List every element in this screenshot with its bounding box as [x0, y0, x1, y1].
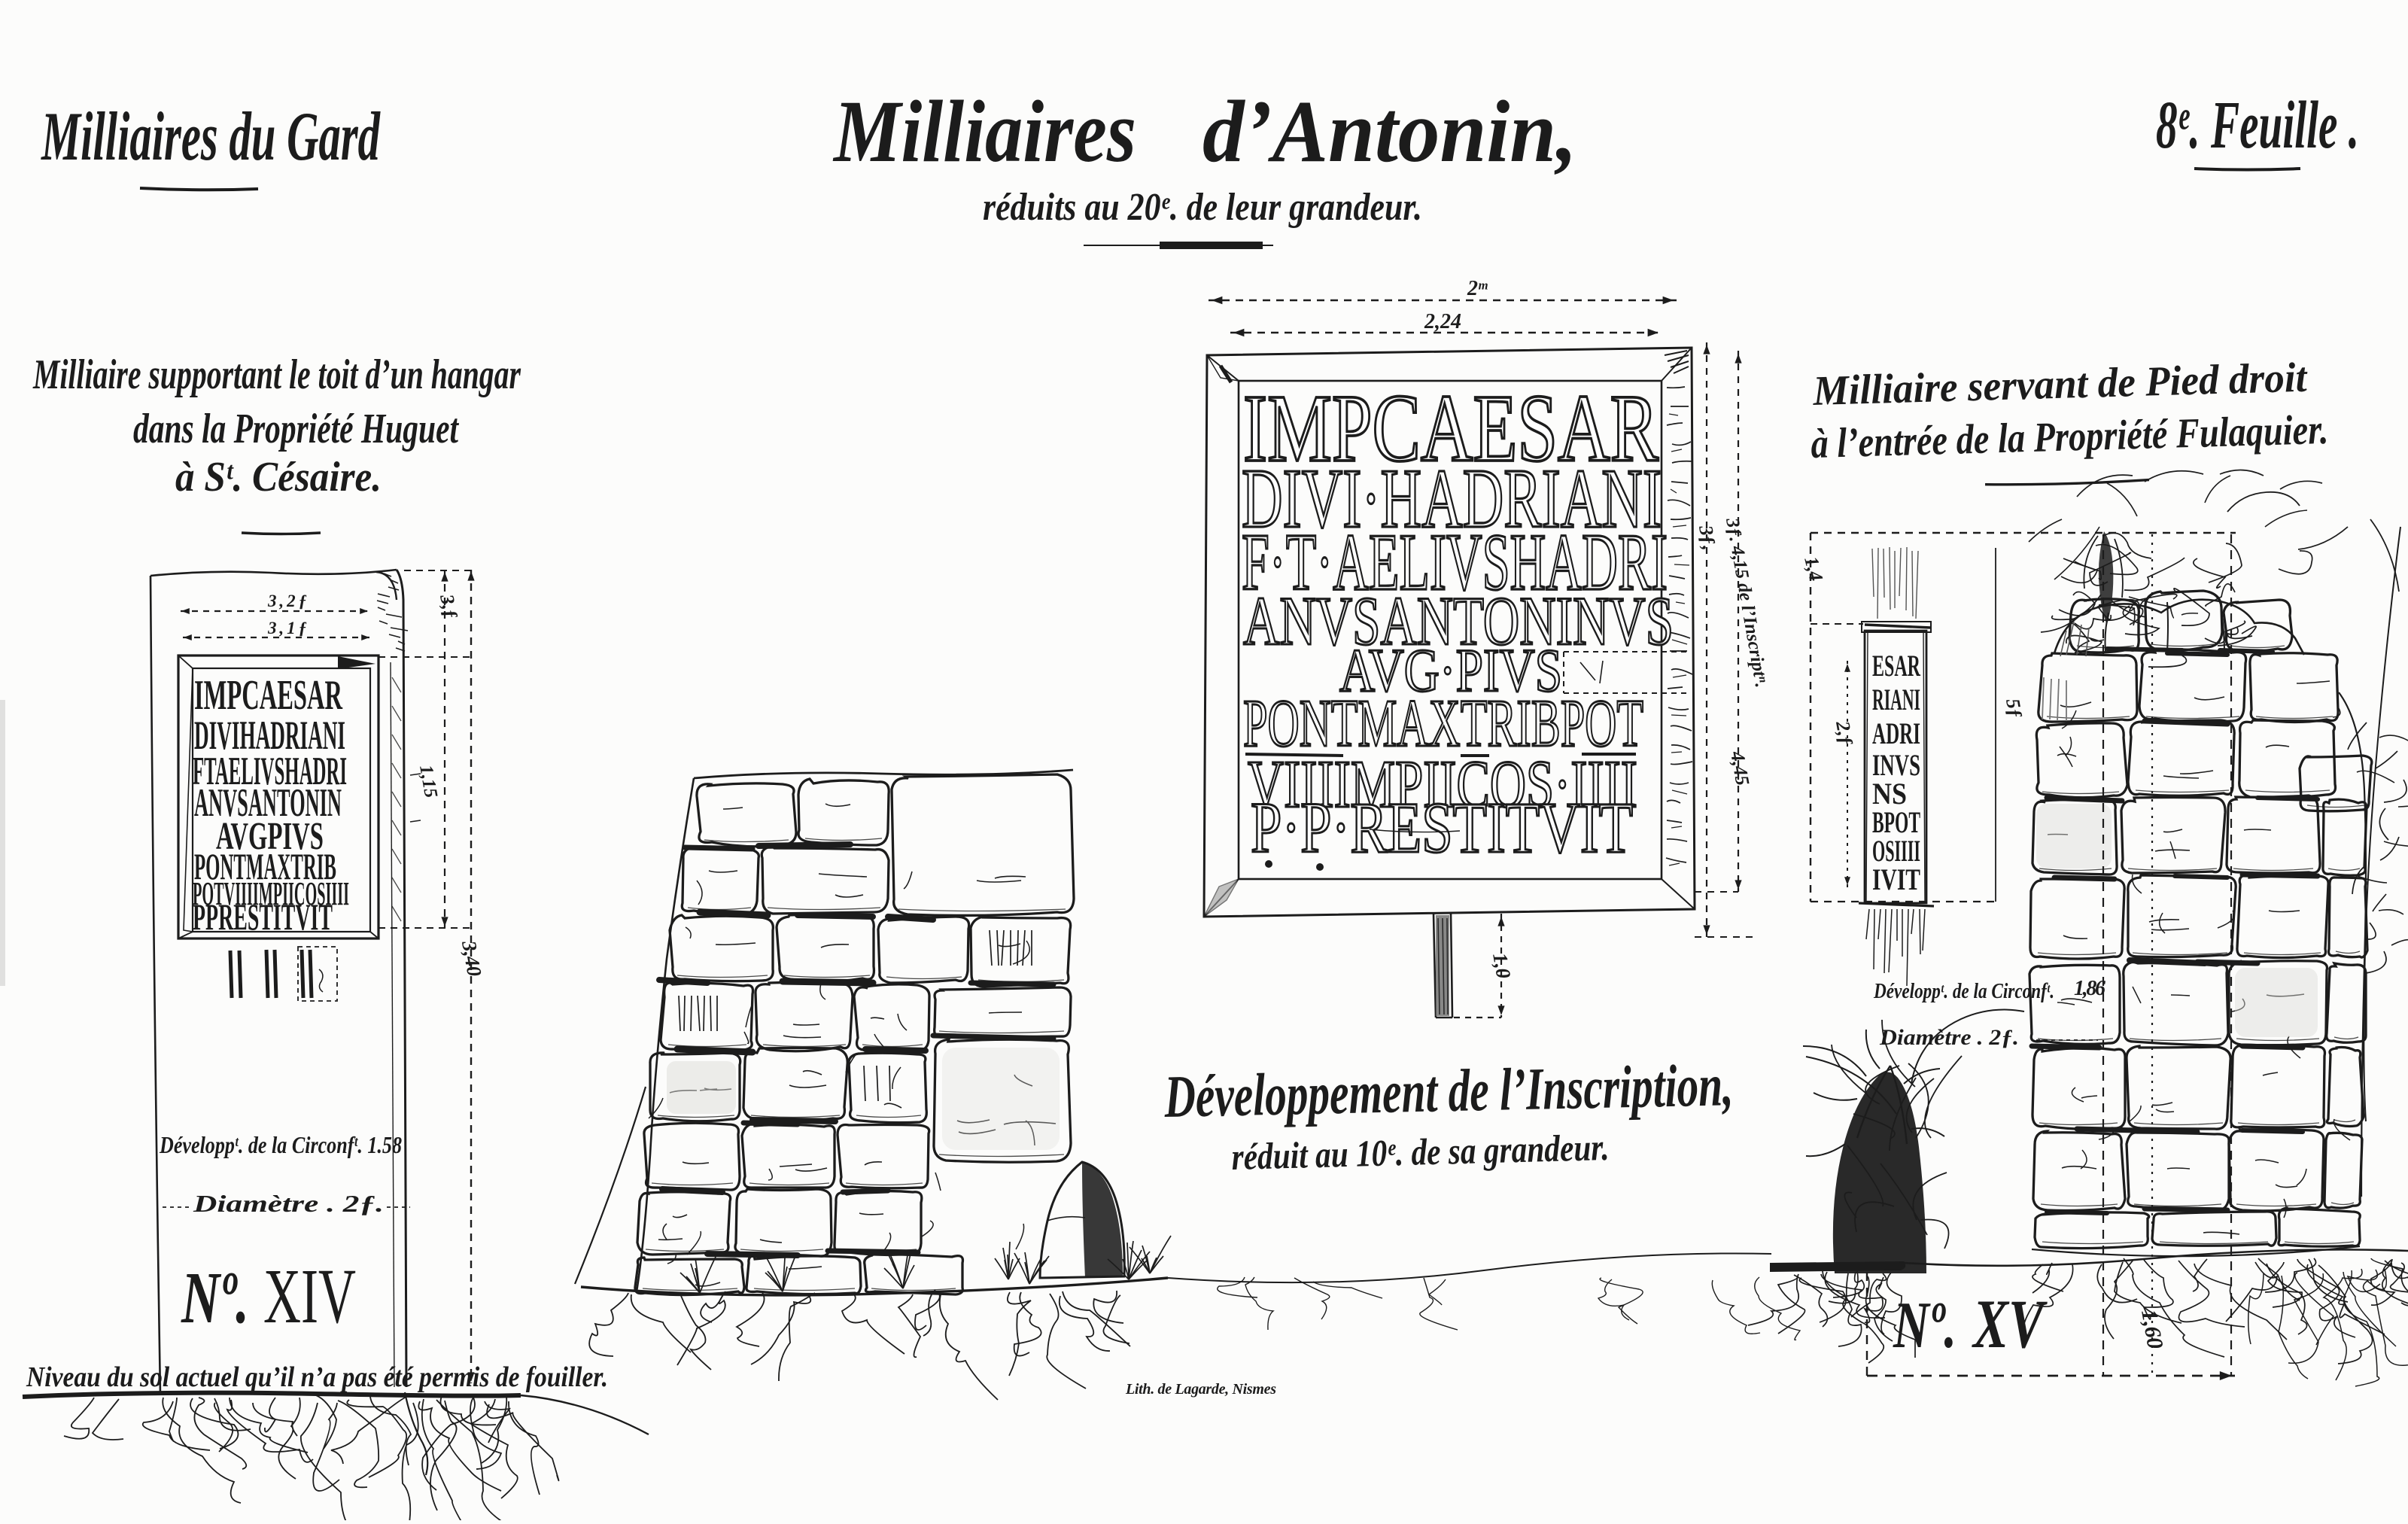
svg-text:XIV: XIV: [263, 1253, 356, 1340]
svg-text:Milliaires du Gard: Milliaires du Gard: [41, 98, 382, 175]
svg-text:Lith. de Lagarde, Nismes: Lith. de Lagarde, Nismes: [1125, 1381, 1276, 1398]
svg-text:2ᵐ: 2ᵐ: [1467, 277, 1488, 300]
svg-text:3,1ƒ: 3,1ƒ: [267, 619, 307, 637]
svg-text:dans la Propriété Huguet: dans la Propriété Huguet: [133, 406, 459, 452]
svg-text:2,24: 2,24: [1424, 310, 1461, 333]
svg-text:Développᵗ. de la Circonfᵗ.: Développᵗ. de la Circonfᵗ.: [1873, 980, 2054, 1003]
svg-text:3,2ƒ: 3,2ƒ: [267, 592, 307, 610]
svg-text:8ᵉ. Feuille .: 8ᵉ. Feuille .: [2156, 88, 2359, 163]
svg-text:réduits au 20ᵉ. de leur grande: réduits au 20ᵉ. de leur grandeur.: [983, 186, 1422, 229]
svg-text:PPRESTITVIT: PPRESTITVIT: [193, 896, 333, 938]
svg-text:Diamètre . 2ƒ.: Diamètre . 2ƒ.: [193, 1190, 384, 1217]
svg-text:Niveau du sol actuel qu’il n’a: Niveau du sol actuel qu’il n’a pas été p…: [26, 1361, 608, 1393]
svg-text:IMPCAESAR: IMPCAESAR: [194, 672, 342, 719]
svg-text:RIANI: RIANI: [1872, 683, 1920, 716]
svg-text:P·P·RESTITVIT: P·P·RESTITVIT: [1251, 787, 1633, 868]
svg-text:Diamètre . 2ƒ.: Diamètre . 2ƒ.: [1879, 1025, 2019, 1050]
svg-text:Développᵗ. de la Circonfᵗ. 1.5: Développᵗ. de la Circonfᵗ. 1.58: [159, 1131, 402, 1158]
svg-text:Nº.: Nº.: [181, 1258, 249, 1339]
svg-text:ADRI: ADRI: [1872, 716, 1920, 750]
svg-text:2,ƒ: 2,ƒ: [1832, 719, 1857, 747]
svg-text:à Sᵗ. Césaire.: à Sᵗ. Césaire.: [175, 454, 382, 500]
svg-text:3ƒ,: 3ƒ,: [1695, 523, 1720, 552]
svg-text:d’Antonin,: d’Antonin,: [1202, 82, 1577, 181]
svg-text:Milliaires: Milliaires: [832, 82, 1136, 181]
svg-text:ESAR: ESAR: [1872, 649, 1921, 683]
svg-text:5ƒ: 5ƒ: [2002, 697, 2026, 720]
svg-text:1,0: 1,0: [1488, 951, 1515, 981]
svg-text:XV: XV: [1972, 1285, 2048, 1362]
svg-text:Développement de l’Inscription: Développement de l’Inscription,: [1163, 1052, 1734, 1130]
svg-text:Milliaire supportant le toit d: Milliaire supportant le toit d’un hangar: [32, 351, 521, 398]
svg-text:1,86: 1,86: [2074, 977, 2105, 1000]
svg-text:Nº.: Nº.: [1893, 1289, 1956, 1362]
svg-text:IVIT: IVIT: [1872, 862, 1920, 896]
